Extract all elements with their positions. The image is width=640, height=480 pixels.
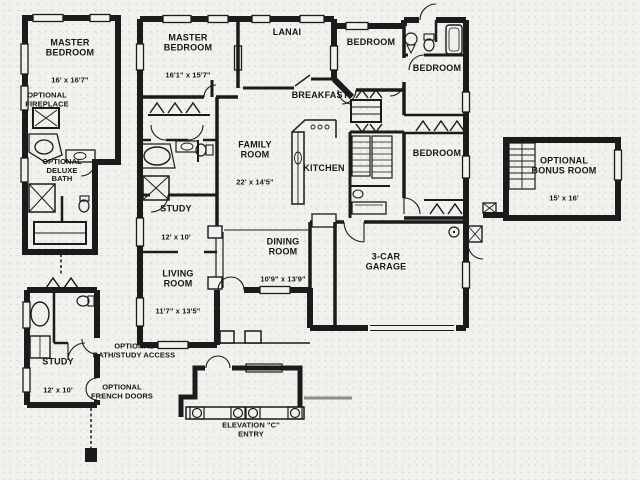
- room-dims: 12' x 10': [160, 232, 192, 241]
- room-label-living-room: LIVING ROOM 11'7" x 13'5": [156, 252, 201, 335]
- room-label-master-bedroom: MASTER BEDROOM 16'1" x 15'7": [164, 16, 212, 99]
- room-label-lanai: LANAI: [273, 10, 302, 74]
- room-dims: 10'9" x 13'9": [260, 275, 305, 284]
- room-name: LIVING ROOM: [156, 270, 201, 289]
- room-dims: 16' x 16'7": [46, 76, 94, 85]
- floor-plan-page: MASTER BEDROOM 16' x 16'7" MASTER BEDROO…: [0, 0, 640, 480]
- room-name: 3-CAR GARAGE: [366, 252, 407, 271]
- room-label-study: STUDY 12' x 10': [160, 186, 192, 259]
- room-name: BEDROOM: [347, 38, 395, 48]
- floor-plan-drawing: [0, 0, 640, 480]
- room-name: BEDROOM: [413, 149, 461, 159]
- room-label-garage: 3-CAR GARAGE: [366, 234, 407, 307]
- annotation-optional-deluxe-bath: OPTIONAL DELUXE BATH: [42, 158, 82, 184]
- room-name: BEDROOM: [413, 64, 461, 74]
- room-dims: 12' x 10': [42, 385, 74, 394]
- room-name: FAMILY ROOM: [236, 141, 273, 160]
- room-label-kitchen: KITCHEN: [303, 146, 344, 210]
- room-label-dining-room: DINING ROOM 10'9" x 13'9": [260, 220, 305, 303]
- room-label-family-room: FAMILY ROOM 22' x 14'5": [236, 123, 273, 206]
- room-name: STUDY: [42, 357, 74, 367]
- room-label-breakfast: BREAKFAST: [292, 73, 349, 137]
- room-label-bedroom-lower-right: BEDROOM: [413, 131, 461, 195]
- room-label-bonus-room: OPTIONAL BONUS ROOM 15' x 16': [532, 139, 597, 222]
- room-label-bedroom-top: BEDROOM: [347, 20, 395, 84]
- room-name: BREAKFAST: [292, 91, 349, 101]
- annotation-elevation-entry: ELEVATION "C" ENTRY: [222, 421, 280, 438]
- room-name: MASTER BEDROOM: [164, 34, 212, 53]
- room-dims: 22' x 14'5": [236, 178, 273, 187]
- room-dims: 16'1" x 15'7": [164, 71, 212, 80]
- room-name: KITCHEN: [303, 164, 344, 174]
- room-label-bedroom-upper-right: BEDROOM: [413, 46, 461, 110]
- room-name: STUDY: [160, 204, 192, 214]
- room-label-study-optional: STUDY 12' x 10': [42, 339, 74, 412]
- room-dims: 15' x 16': [532, 194, 597, 203]
- room-name: LANAI: [273, 28, 302, 38]
- room-dims: 11'7" x 13'5": [156, 307, 201, 316]
- annotation-optional-bath-study-access: OPTIONAL BATH/STUDY ACCESS: [93, 342, 175, 359]
- room-name: OPTIONAL BONUS ROOM: [532, 157, 597, 176]
- room-name: DINING ROOM: [260, 238, 305, 257]
- annotation-optional-fireplace: OPTIONAL FIREPLACE: [25, 91, 68, 108]
- annotation-optional-french-doors: OPTIONAL FRENCH DOORS: [91, 383, 153, 400]
- room-name: MASTER BEDROOM: [46, 39, 94, 58]
